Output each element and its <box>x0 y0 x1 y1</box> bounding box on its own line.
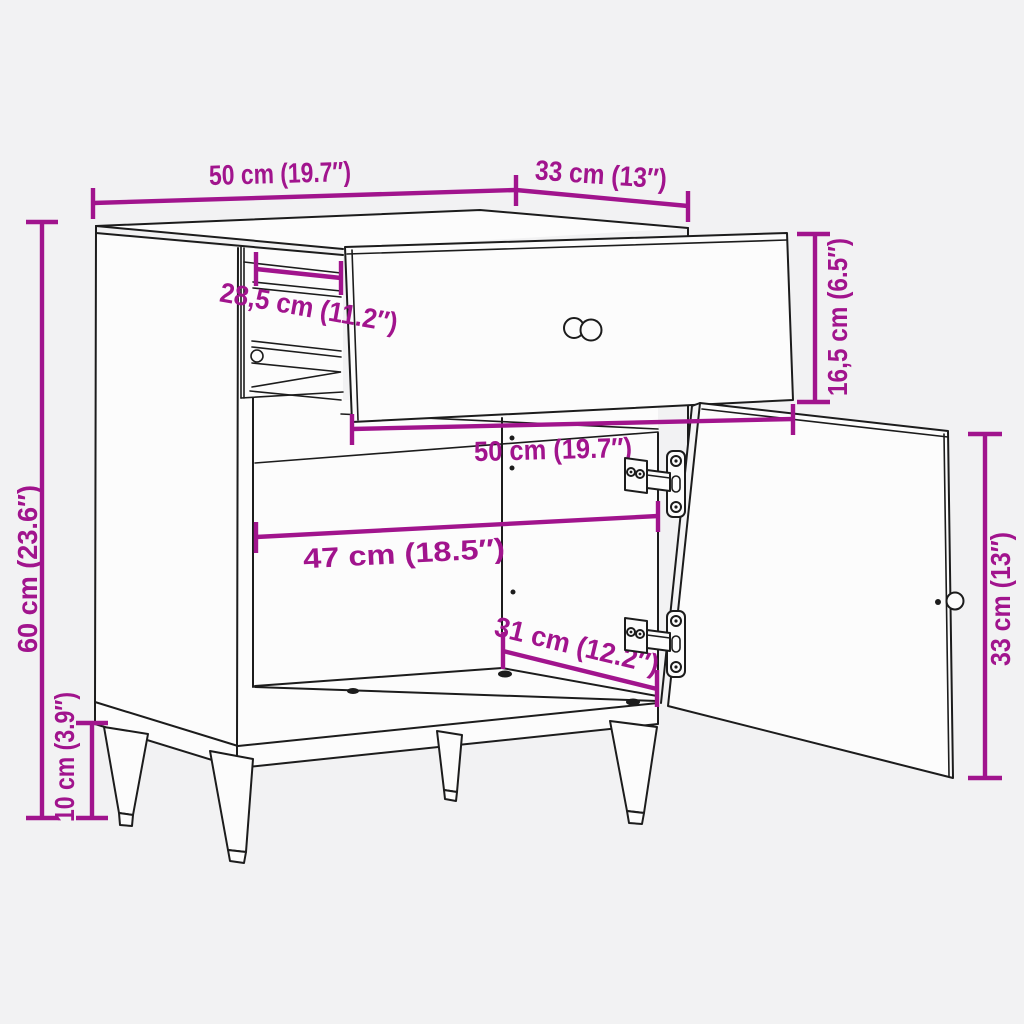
dimension-top-depth: 33 cm (13″) <box>516 154 688 222</box>
dim-height-label: 60 cm (23.6″) <box>12 485 43 653</box>
door-knob-icon <box>947 593 964 610</box>
dim-top-width-label: 50 cm (19.7″) <box>209 156 352 191</box>
dim-drawer-width-label: 50 cm (19.7″) <box>474 432 633 467</box>
leg-front-center <box>210 751 253 863</box>
door-panel <box>668 403 953 778</box>
open-door <box>661 403 964 778</box>
dim-drawer-height-label: 16,5 cm (6.5″) <box>822 238 853 396</box>
dimension-drawer-height: 16,5 cm (6.5″) <box>797 234 853 402</box>
leg-front-right <box>610 721 657 824</box>
dim-door-height-label: 33 cm (13″) <box>985 532 1016 666</box>
door-knob-screw-dot <box>935 599 941 605</box>
floor-screw-dot <box>626 699 640 706</box>
dim-leg-height-label: 10 cm (3.9″) <box>49 692 80 822</box>
drawer-knob-icon <box>564 318 602 341</box>
cabinet-dimension-diagram: 50 cm (19.7″) 33 cm (13″) 60 cm (23.6″) … <box>0 0 1024 1024</box>
open-drawer <box>345 233 793 422</box>
floor-screw-dot <box>347 688 359 694</box>
leg-front-left <box>104 727 148 826</box>
floor-screw-dot <box>498 671 512 678</box>
dimension-line <box>93 190 516 203</box>
cabinet-left-panel <box>95 233 238 768</box>
leg-back-center <box>437 731 462 801</box>
shelf-pin-hole <box>511 590 516 595</box>
dim-top-depth-label: 33 cm (13″) <box>534 154 668 194</box>
dimension-door-height: 33 cm (13″) <box>968 434 1016 778</box>
shelf-pin-hole <box>510 466 515 471</box>
diagram-canvas: 50 cm (19.7″) 33 cm (13″) 60 cm (23.6″) … <box>0 0 1024 1024</box>
dimension-top-width: 50 cm (19.7″) <box>93 156 516 219</box>
